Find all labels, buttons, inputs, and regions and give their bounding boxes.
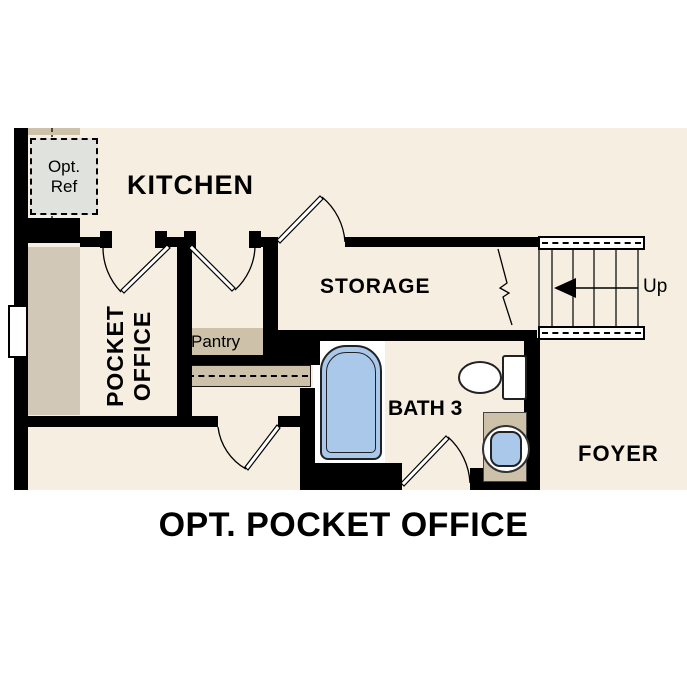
floor-plan: Opt. Ref	[0, 0, 687, 687]
bath-label: BATH 3	[388, 397, 462, 421]
door-swing-pocket-office	[103, 245, 170, 293]
stairs-up-label: Up	[643, 276, 667, 298]
storage-label: STORAGE	[320, 275, 430, 299]
pantry-label: Pantry	[191, 332, 240, 352]
plan-title: OPT. POCKET OFFICE	[0, 506, 687, 545]
kitchen-label: KITCHEN	[127, 170, 254, 201]
stair-break-line	[498, 249, 512, 325]
door-swing-bath	[401, 436, 470, 486]
pocket-office-label: POCKET OFFICE	[69, 296, 189, 416]
stairs	[498, 249, 638, 326]
door-swing-pantry	[189, 245, 255, 291]
pocket-office-label-line1: POCKET	[102, 305, 129, 407]
pocket-office-label-line2: OFFICE	[129, 305, 156, 407]
door-swing-hall	[218, 425, 280, 470]
stair-arrow-head	[554, 278, 576, 298]
foyer-label: FOYER	[578, 441, 659, 467]
door-swing-kitchen	[277, 196, 345, 243]
